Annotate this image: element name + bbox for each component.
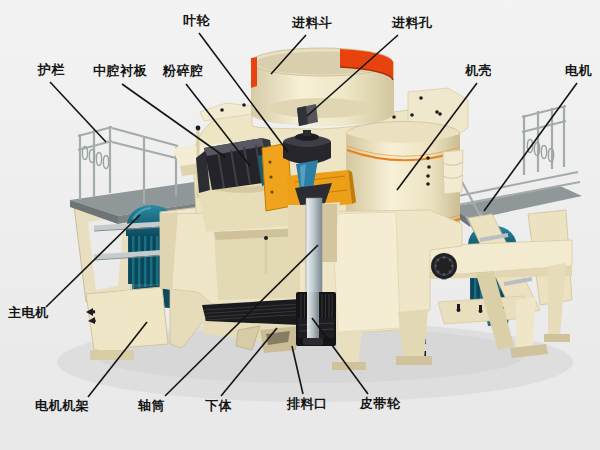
feed-hopper: [251, 48, 394, 126]
part-label-cavity-liner-plate: 中腔衬板: [93, 64, 147, 79]
part-label-feed-opening: 进料孔: [392, 16, 433, 31]
part-label-main-motor: 主电机: [8, 306, 49, 321]
hopper-red-edge: [251, 57, 257, 88]
part-label-shaft-sleeve: 轴筒: [138, 399, 165, 414]
part-label-belt-pulley: 皮带轮: [360, 397, 401, 412]
part-label-impeller: 叶轮: [183, 14, 210, 29]
part-label-crushing-chamber: 粉碎腔: [163, 64, 204, 79]
machine-illustration: [0, 0, 600, 450]
part-label-motor-frame: 电机机架: [35, 399, 89, 414]
part-label-motor: 电机: [565, 64, 592, 79]
part-label-guardrail: 护栏: [38, 63, 65, 78]
diagram-canvas: 叶轮 进料斗 进料孔 护栏 中腔衬板 粉碎腔 机壳 电机 主电机 电机机架 轴筒…: [0, 0, 600, 450]
part-label-discharge-port: 排料口: [287, 397, 328, 412]
part-label-lower-body: 下体: [205, 399, 232, 414]
part-label-feed-hopper: 进料斗: [292, 16, 333, 31]
part-label-machine-casing: 机壳: [465, 64, 492, 79]
